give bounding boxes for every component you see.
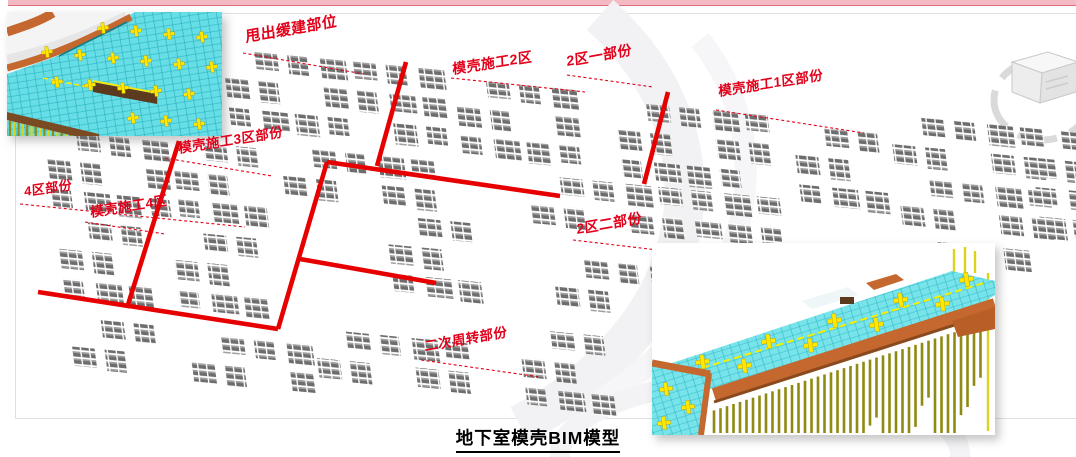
block-cluster [687,166,713,190]
block-cluster [253,339,275,360]
block-cluster [654,162,682,184]
block-cluster [892,144,917,166]
block-cluster [286,342,315,366]
block-cluster [531,204,556,226]
block-cluster [617,263,639,284]
block-cluster [203,234,228,254]
block-cluster [379,335,401,356]
block-cluster [59,249,84,271]
block-cluster [554,361,577,384]
block-cluster [558,390,586,412]
block-cluster [426,126,448,145]
block-cluster [987,124,1016,148]
block-cluster [555,116,580,138]
block-cluster [450,221,472,242]
slide-canvas: 甩出缓建部位模壳施工2区2区一部份模壳施工1区部份模壳施工3区部份4区部份模壳施… [0,0,1076,457]
block-cluster [592,181,614,202]
block-cluster [290,372,315,394]
block-cluster [51,189,73,208]
block-cluster [900,205,925,227]
block-cluster [679,107,701,128]
block-cluster [954,121,976,142]
block-cluster [346,332,371,352]
block-cluster [287,55,309,76]
block-cluster [283,176,308,198]
block-cluster [1072,220,1076,240]
block-cluster [824,129,849,149]
block-cluster [262,111,290,133]
block-cluster [393,123,419,147]
block-cluster [458,280,484,304]
block-cluster [121,226,143,247]
block-cluster [559,177,584,197]
block-cluster [203,143,228,163]
block-cluster [229,107,251,126]
block-cluster [412,338,441,362]
block-cluster [353,61,378,81]
zone-boundary-line [327,162,560,196]
block-cluster [995,185,1024,209]
block-cluster [991,154,1016,176]
block-cluster [317,358,342,380]
block-cluster [327,117,349,136]
block-cluster [563,207,586,230]
block-cluster [828,158,851,181]
block-cluster [1039,217,1068,241]
block-cluster [418,67,447,91]
block-cluster [728,223,753,245]
block-cluster [691,190,713,211]
block-cluster [174,169,199,191]
block-cluster [207,263,230,286]
block-cluster [745,113,770,133]
block-cluster [1061,131,1076,151]
block-cluster [1032,158,1057,180]
block-cluster [921,118,946,138]
block-cluster [662,216,685,239]
zone-boundary-line [300,259,436,283]
block-cluster [1064,161,1076,184]
block-cluster [142,139,171,163]
block-cluster [1020,127,1045,147]
block-cluster [461,136,483,155]
block-cluster [1035,187,1057,206]
block-cluster [658,187,683,207]
block-cluster [925,147,948,170]
block-cluster [72,346,97,368]
inset-3d-view-bottom-right [652,243,995,435]
block-cluster [221,336,246,356]
block-cluster [356,91,379,114]
block-cluster [799,184,821,203]
block-cluster [712,110,741,134]
block-cluster [109,136,131,157]
block-cluster [933,208,956,231]
block-cluster [236,146,258,167]
block-cluster [748,142,771,165]
block-cluster [448,371,471,394]
block-cluster [550,331,575,351]
block-cluster [225,78,250,100]
block-cluster [92,252,115,275]
block-cluster [583,334,605,355]
block-cluster [695,220,723,240]
inset-3d-view-top-left [7,12,222,136]
block-cluster [526,142,552,166]
block-cluster [422,97,447,119]
block-cluster [1003,248,1032,272]
block-cluster [244,205,270,229]
block-cluster [47,159,72,181]
block-cluster [178,289,200,308]
block-cluster [258,81,281,104]
block-cluster [211,202,239,224]
block-cluster [757,196,782,216]
block-cluster [724,193,753,217]
block-cluster [174,260,199,282]
block-cluster [720,169,742,188]
block-cluster [254,52,279,72]
block-cluster [795,155,820,177]
block-cluster [224,365,247,388]
block-cluster [625,184,654,208]
block-cluster [962,182,984,203]
block-cluster [350,361,373,384]
block-cluster [621,159,643,178]
block-cluster [417,218,442,238]
block-cluster [857,132,879,153]
block-cluster [236,237,258,258]
block-cluster [244,296,270,320]
block-cluster [421,248,444,271]
block-cluster [617,130,642,152]
block-cluster [382,185,407,207]
block-cluster [716,139,741,161]
block-cluster [80,162,103,185]
zone-boundary-line [38,292,278,329]
block-cluster [486,80,511,100]
block-cluster [555,287,580,309]
page-title: 地下室模壳BIM模型 [456,425,621,453]
block-cluster [929,179,954,199]
block-cluster [521,358,546,380]
block-cluster [525,387,547,406]
block-cluster [588,290,611,313]
block-cluster [629,213,654,235]
block-cluster [457,106,482,128]
block-cluster [295,114,321,138]
block-cluster [324,87,349,109]
block-cluster [415,367,440,389]
block-cluster [444,341,469,361]
block-cluster [105,350,128,373]
block-cluster [551,86,580,110]
block-cluster [559,145,581,164]
block-cluster [211,293,239,315]
slide-title-row: 地下室模壳BIM模型 [0,425,1076,453]
block-cluster [133,323,155,344]
block-cluster [591,393,617,417]
zone-boundary-line [127,141,179,308]
block-cluster [832,188,860,210]
block-cluster [493,139,521,161]
block-cluster [865,191,891,215]
block-cluster [101,320,126,340]
block-cluster [207,173,230,196]
block-cluster [584,260,609,280]
block-cluster [1068,190,1076,212]
block-cluster [999,215,1024,237]
block-cluster [178,199,200,218]
block-cluster [320,58,349,82]
block-cluster [192,362,217,384]
block-cluster [415,189,438,212]
block-cluster [490,109,513,132]
block-cluster [388,244,413,266]
